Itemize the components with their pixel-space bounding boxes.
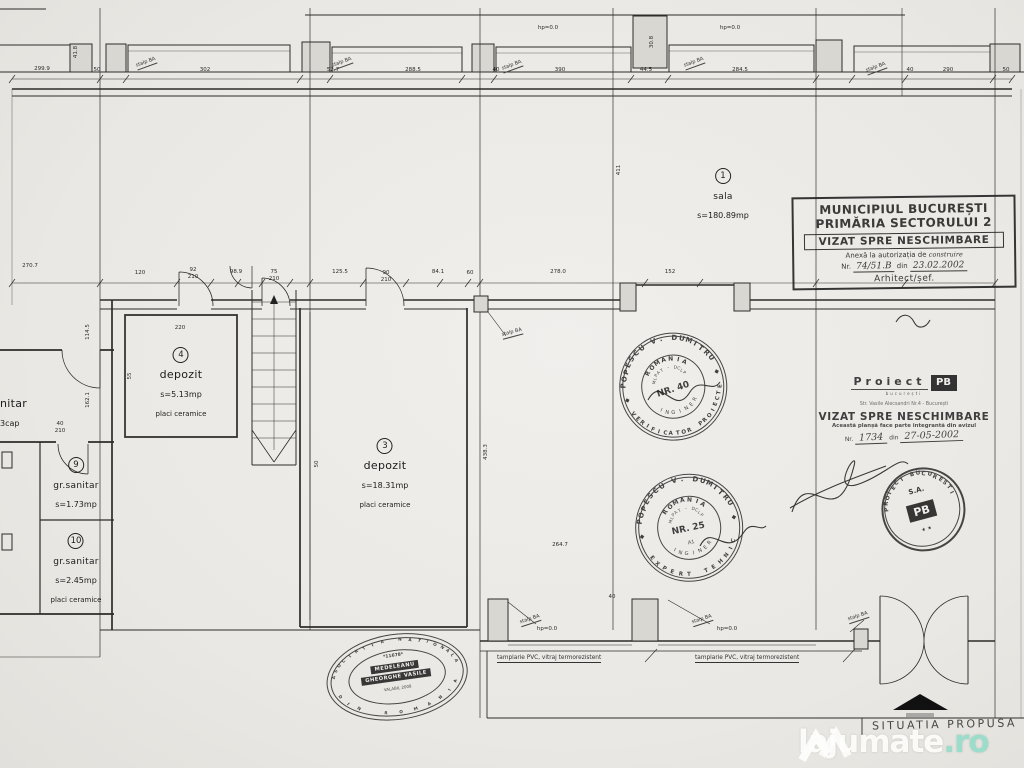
dim-label: 40	[57, 421, 64, 427]
dim-label: 90	[383, 270, 390, 276]
stamp-official-title: Arhitect/șef.	[798, 273, 1010, 286]
room-name: gr.sanitar	[53, 481, 99, 491]
dim-label: 40	[493, 67, 500, 73]
dim-label: 50	[1003, 67, 1010, 73]
dim-label: 50	[314, 461, 320, 468]
stamp-ring-char: U	[915, 471, 920, 477]
stamp-ring-char: P	[636, 519, 644, 525]
stamp-ring-char: A	[408, 637, 412, 642]
stamp-ring-char: N	[668, 355, 673, 362]
dim-label: 114.5	[85, 324, 91, 340]
dim-label: hp=0.0	[538, 25, 558, 31]
room-name: depozit	[364, 459, 407, 472]
stamp-ring-char: O	[399, 709, 403, 714]
dim-label: 278.0	[550, 269, 566, 275]
room-area: s=18.31mp	[362, 481, 409, 490]
dim-label: 50	[94, 67, 101, 73]
room-number: 3	[377, 438, 393, 454]
stamp-ring-char: A	[669, 431, 673, 437]
stamp-ring-char: T	[687, 572, 691, 578]
stamp-ring-char: C	[662, 430, 667, 437]
stamp-visa-text: VIZAT SPRE NESCHIMBARE	[804, 232, 1004, 250]
dim-label: 41.8	[73, 46, 79, 58]
room-label-depozit3: 3 depozit s=18.31mp placi ceramice	[360, 433, 411, 511]
dim-label: 120	[135, 270, 146, 276]
room-label-grsanitar10: 10 gr.sanitar s=2.45mp placi ceramice	[51, 528, 102, 606]
room-label-depozit4: 4 depozit s=5.13mp placi ceramice	[156, 342, 207, 420]
dim-label: 411	[616, 165, 622, 176]
stamp-proiect-bucuresti-visa: ProiectPB bucurești Str. Vasile Alecsand…	[800, 372, 1008, 442]
room-note: placi ceramice	[360, 501, 411, 509]
dim-label: 40	[907, 67, 914, 73]
dim-label: 84.1	[432, 269, 444, 275]
dim-label: 390	[555, 67, 566, 73]
dim-label: 30.8	[649, 36, 655, 48]
room-area: s=1.73mp	[55, 500, 97, 509]
stamp-ring-char: T	[417, 637, 421, 643]
dim-label: 125.5	[332, 269, 348, 275]
stamp-oval-evaluator: *11678* MEDELEANU GHEORGHE VASILE VALABI…	[315, 616, 477, 736]
stamp-ring-char: P	[620, 383, 628, 388]
room-note: placi ceramice	[51, 596, 102, 604]
dim-label: 302	[200, 67, 211, 73]
room-name: nitar	[0, 397, 27, 410]
stamp-ring-char: .	[680, 475, 684, 483]
din-label: din	[897, 262, 908, 270]
stamp-ring-char: O	[637, 511, 646, 519]
floorplan-scan: 299.95030252.7288.54039044.5284.54029050…	[0, 0, 1024, 768]
dim-label: 288.5	[405, 67, 421, 73]
stamp-ring-char	[687, 475, 690, 483]
date-handwritten: 27-05-2002	[900, 429, 963, 443]
room-name: depozit	[160, 368, 203, 381]
nr-label: Nr.	[845, 436, 854, 443]
stamp-ring-char: D	[672, 334, 678, 342]
room-name: sala	[713, 192, 732, 202]
din-label: din	[889, 434, 899, 441]
dim-label: hp=0.0	[717, 626, 737, 632]
dim-label: 98.9	[230, 269, 242, 275]
visa-text: VIZAT SPRE NESCHIMBARE	[800, 411, 1008, 423]
watermark-lajumate: lajumate.ro	[798, 724, 989, 760]
lajumate-logo-icon	[798, 724, 852, 766]
room-label-cutoff: nitar 3cap	[0, 392, 27, 430]
nr-handwritten: 1734	[855, 432, 888, 445]
stamp-ring-char: N	[399, 637, 403, 642]
room-label-sala: 1 sala s=180.89mp	[697, 163, 749, 222]
separator-diamond-icon: ◆	[731, 513, 737, 521]
separator-diamond-icon: ◆	[639, 533, 645, 541]
dim-label: 210	[188, 274, 199, 280]
dim-label: 284.5	[732, 67, 748, 73]
stamp-ring-char: A	[331, 675, 336, 679]
room-label-grsanitar9: 9 gr.sanitar s=1.73mp	[53, 452, 99, 511]
room-area: 3cap	[0, 419, 19, 428]
dim-label: hp=0.0	[720, 25, 740, 31]
brand-text: Proiect	[851, 375, 927, 390]
room-number: 1	[715, 168, 731, 184]
address-line: Str. Vasile Alecsandri Nr.4 - București	[800, 402, 1008, 407]
stamp-ring-char: T	[675, 430, 679, 436]
stamp-number-row: Nr. 74/51.B din 23.02.2002	[798, 260, 1010, 273]
stamp-sector-line: PRIMĂRIA SECTORULUI 2	[798, 215, 1010, 232]
annex-label: Anexă la autorizația de	[845, 251, 926, 260]
glazing-label-1: tamplarie PVC, vitraj termorezistent	[497, 655, 601, 663]
room-number: 4	[173, 347, 189, 363]
dim-label: 299.9	[34, 66, 50, 72]
pb-logo: PB	[931, 375, 957, 391]
stamp-ring-char: N	[687, 496, 692, 503]
dim-label: 60	[467, 270, 474, 276]
dim-label: 92	[190, 267, 197, 273]
stamp-ring-char: A	[679, 497, 685, 505]
room-note: placi ceramice	[156, 410, 207, 418]
dim-label: 220	[175, 325, 186, 331]
dim-label: 438.3	[483, 444, 489, 460]
watermark-tld: .ro	[943, 724, 988, 760]
room-name: gr.sanitar	[53, 557, 99, 567]
room-area: s=2.45mp	[55, 576, 97, 585]
stamp-ring-char: I	[692, 550, 695, 556]
stamp-ring-char: O	[681, 429, 687, 436]
annex-handwritten: construire	[929, 250, 963, 258]
dim-label: 290	[943, 67, 954, 73]
room-area: s=5.13mp	[160, 390, 202, 399]
dim-label: 44.5	[640, 67, 652, 73]
dim-label: hp=0.0	[537, 626, 557, 632]
dim-label: 152	[665, 269, 676, 275]
stamp-ring-char: E	[717, 384, 723, 388]
room-area: s=180.89mp	[697, 211, 749, 220]
dim-label: 75	[271, 269, 278, 275]
dim-label: 264.7	[552, 542, 568, 548]
stamp-round-expert: NR. 25 A1 ◆ ◆ POPESCU V. DUMITRUEXPERT T…	[605, 444, 771, 610]
dim-label: 40	[609, 594, 616, 600]
dim-label: 210	[269, 276, 280, 282]
nr-label: Nr.	[841, 263, 851, 271]
room-number: 10	[68, 533, 84, 549]
stamp-ring-char: -	[667, 365, 670, 370]
dim-label: 162.1	[85, 392, 91, 408]
dim-label: 55	[127, 373, 133, 380]
nr-handwritten: 74/51.B	[853, 261, 895, 273]
dim-label: 210	[381, 277, 392, 283]
stamp-ring-char: R	[678, 571, 683, 578]
stamp-ring-char	[666, 334, 669, 342]
glazing-label-2: tamplarie PVC, vitraj termorezistent	[695, 655, 799, 663]
stamp-ring-char: P	[884, 508, 890, 512]
stamp-ring-char: R	[884, 502, 890, 507]
dim-label: 270.7	[22, 263, 38, 269]
stamp-ring-char: O	[620, 375, 629, 382]
stamp-ring-char: -	[685, 506, 687, 511]
entrance-marker-triangle	[893, 694, 948, 710]
stamp-primaria-sector2: MUNICIPIUL BUCUREȘTI PRIMĂRIA SECTORULUI…	[791, 195, 1016, 291]
stamp-ring-char: T	[716, 390, 722, 395]
dim-label: 210	[55, 428, 66, 434]
room-number: 9	[68, 457, 84, 473]
date-handwritten: 23.02.2002	[910, 260, 968, 272]
stamp-annex-line: Anexă la autorizația de construire	[798, 250, 1010, 261]
brand-sub: bucurești	[800, 391, 1008, 396]
